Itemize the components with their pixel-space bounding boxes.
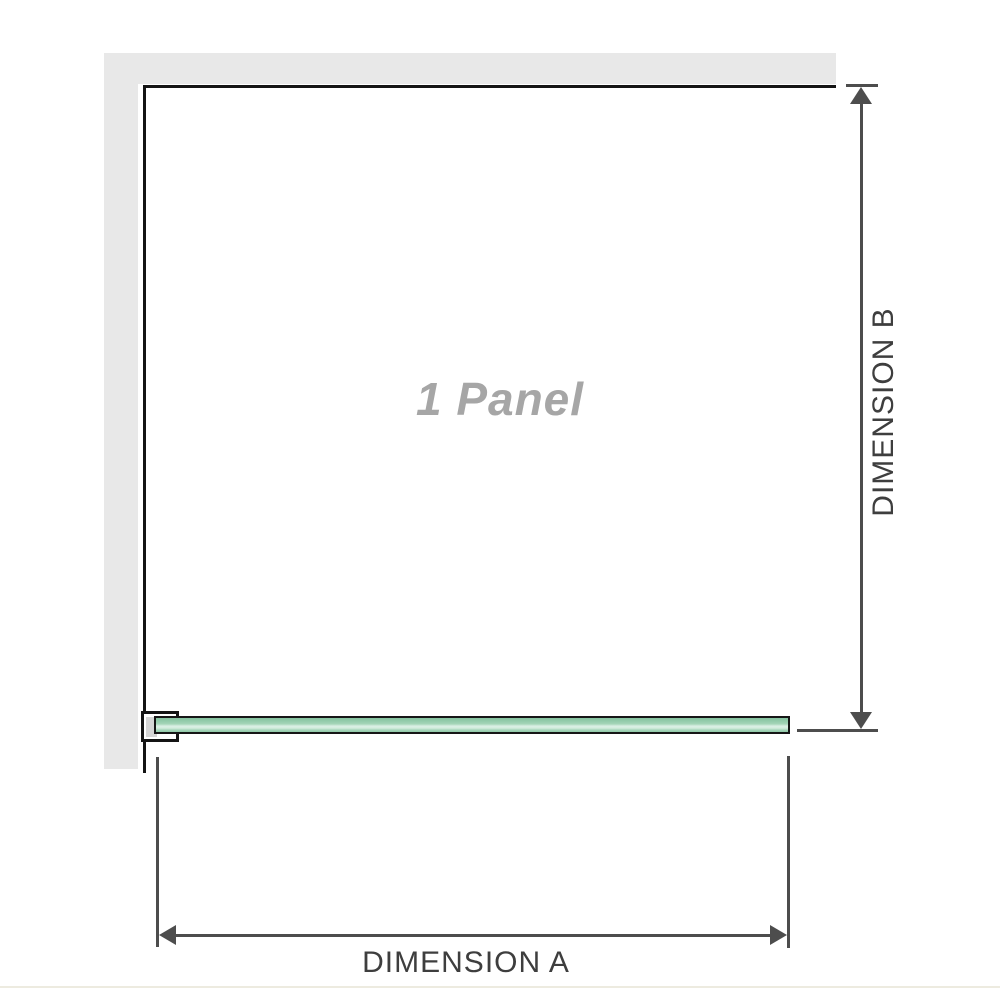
arrow-down-icon xyxy=(850,712,872,729)
arrow-left-icon xyxy=(159,925,176,945)
arrow-up-icon xyxy=(850,87,872,104)
panel-dimension-diagram: 1 Panel DIMENSION B DIMENSION A xyxy=(0,0,1000,1000)
wall-left xyxy=(104,53,138,769)
panel-border-left xyxy=(143,85,146,773)
dimension-a-line xyxy=(172,934,774,937)
panel-count-label: 1 Panel xyxy=(375,372,625,426)
wall-top xyxy=(104,53,836,84)
dimension-b-label: DIMENSION B xyxy=(867,297,901,527)
dimension-b-tick-bottom xyxy=(797,729,878,732)
panel-border-top xyxy=(143,85,836,88)
glass-panel-bar xyxy=(154,716,790,734)
dimension-a-extension-left xyxy=(156,757,159,947)
dimension-b-line xyxy=(860,99,863,716)
arrow-right-icon xyxy=(770,925,787,945)
dimension-a-label: DIMENSION A xyxy=(316,946,616,980)
dimension-a-extension-right xyxy=(787,756,790,948)
footer-divider xyxy=(0,986,1000,988)
